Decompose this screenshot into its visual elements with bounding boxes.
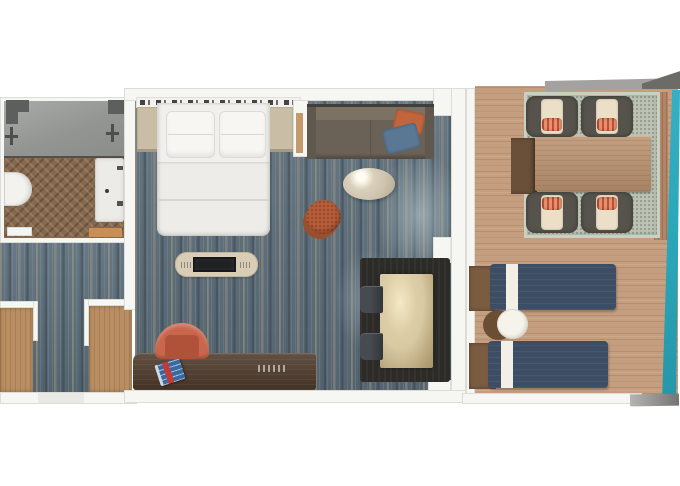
console-speaker-grille <box>181 262 192 268</box>
patio-chair <box>526 96 578 137</box>
shower-corner-block <box>108 100 124 114</box>
desk-accessories <box>258 365 286 372</box>
dining-table <box>380 274 433 368</box>
patio-chair <box>581 96 633 137</box>
patio-chair-pillow <box>542 197 562 210</box>
sofa-seat-seam <box>370 120 371 159</box>
wardrobe-right <box>89 306 132 392</box>
entry-wall <box>33 301 38 341</box>
patio-chair <box>581 192 633 233</box>
pillow-crease <box>221 134 264 135</box>
sun-lounger <box>490 264 616 310</box>
tv <box>193 257 236 272</box>
bath-mat <box>89 228 122 237</box>
dining-chair <box>360 286 383 313</box>
wardrobe-left <box>0 308 33 392</box>
cabin-bottom-wall <box>124 390 466 403</box>
nightstand-left <box>137 107 158 152</box>
sun-lounger <box>488 341 608 388</box>
balcony-bottom-wall <box>462 393 642 404</box>
patio-chair-pillow <box>597 118 617 131</box>
dining-chair <box>360 333 383 360</box>
shower-corner-block <box>6 112 18 124</box>
vanity-drain <box>105 189 109 193</box>
bathroom-threshold <box>7 227 32 236</box>
pillow-crease <box>168 134 213 135</box>
console-speaker-grille <box>240 262 251 268</box>
towel-rail <box>117 166 123 170</box>
balcony-bottom-gray-bar <box>630 394 679 407</box>
coffee-table <box>343 168 395 200</box>
side-table <box>497 309 528 339</box>
divider-wood-trim <box>296 113 303 153</box>
shower-valve-icon <box>106 124 119 142</box>
shower-valve-icon <box>5 127 18 145</box>
lounger-stripe <box>501 341 513 388</box>
shower-corner-block <box>6 100 29 112</box>
nightstand-right <box>269 107 293 152</box>
entry-door <box>38 393 84 403</box>
patio-chair <box>526 192 578 233</box>
duvet-fold-line <box>158 199 269 201</box>
cabin-right-wall <box>451 88 466 403</box>
balcony-table <box>535 136 651 191</box>
lounger-stripe <box>506 264 518 310</box>
patio-chair-pillow <box>542 118 562 131</box>
patio-chair-pillow <box>597 197 617 210</box>
towel-rail <box>117 201 123 206</box>
sofa-arm-left <box>307 107 316 159</box>
desk-chair-seat <box>165 335 199 359</box>
floor-plan <box>0 0 680 486</box>
ottoman-pouf <box>306 200 341 234</box>
balcony-bench <box>511 138 537 194</box>
sofa-arm-right <box>425 107 434 159</box>
